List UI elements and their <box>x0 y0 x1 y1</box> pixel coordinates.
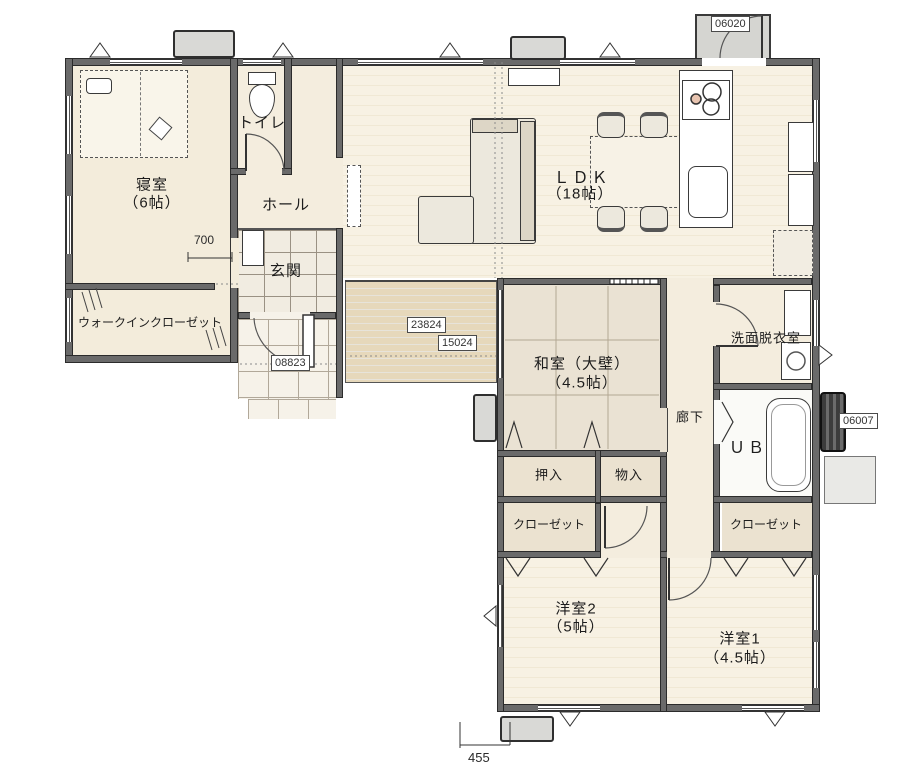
door-arcs <box>246 16 762 600</box>
label-genkan: 玄関 <box>270 260 302 281</box>
ranma-marks <box>610 279 658 284</box>
label-ub: ＵＢ <box>729 434 767 458</box>
label-youshitsu2-size: （5帖） <box>547 616 604 637</box>
floor-plan: 寝室 （6帖） トイレ ホール 玄関 ウォークインクローゼット ＬＤＫ （18帖… <box>0 0 899 776</box>
dim-15024: 15024 <box>438 335 477 351</box>
label-toilet: トイレ <box>238 112 286 133</box>
label-senmen: 洗面脱衣室 <box>731 328 801 347</box>
dim-455: 455 <box>468 750 490 765</box>
stove-burners <box>691 83 721 115</box>
dim-08823: 08823 <box>271 355 310 371</box>
dim-700: 700 <box>194 233 214 247</box>
label-closet-y1: クローゼット <box>730 516 802 533</box>
dimension-brackets <box>188 252 510 748</box>
label-oshiire: 押入 <box>535 465 563 484</box>
construction-lines <box>216 62 502 364</box>
label-walkin-closet: ウォークインクローゼット <box>78 314 222 331</box>
label-closet-y2: クローゼット <box>513 516 585 533</box>
label-hall: ホール <box>262 194 310 215</box>
dim-23824: 23824 <box>407 317 446 333</box>
label-youshitsu1-size: （4.5帖） <box>704 647 776 668</box>
label-washitsu: 和室（大壁） <box>534 353 630 374</box>
label-ldk-size: （18帖） <box>547 183 614 204</box>
label-monoire: 物入 <box>615 465 643 484</box>
dim-06007: 06007 <box>839 413 878 429</box>
vent-triangles <box>90 43 832 726</box>
label-youshitsu1: 洋室1 <box>719 628 760 649</box>
label-washitsu-size: （4.5帖） <box>546 372 618 393</box>
washer-drum <box>787 352 805 370</box>
dim-06020: 06020 <box>711 16 750 32</box>
label-bedroom-size: （6帖） <box>123 192 180 213</box>
label-corridor: 廊下 <box>676 407 704 426</box>
door-v-marks <box>506 402 806 576</box>
